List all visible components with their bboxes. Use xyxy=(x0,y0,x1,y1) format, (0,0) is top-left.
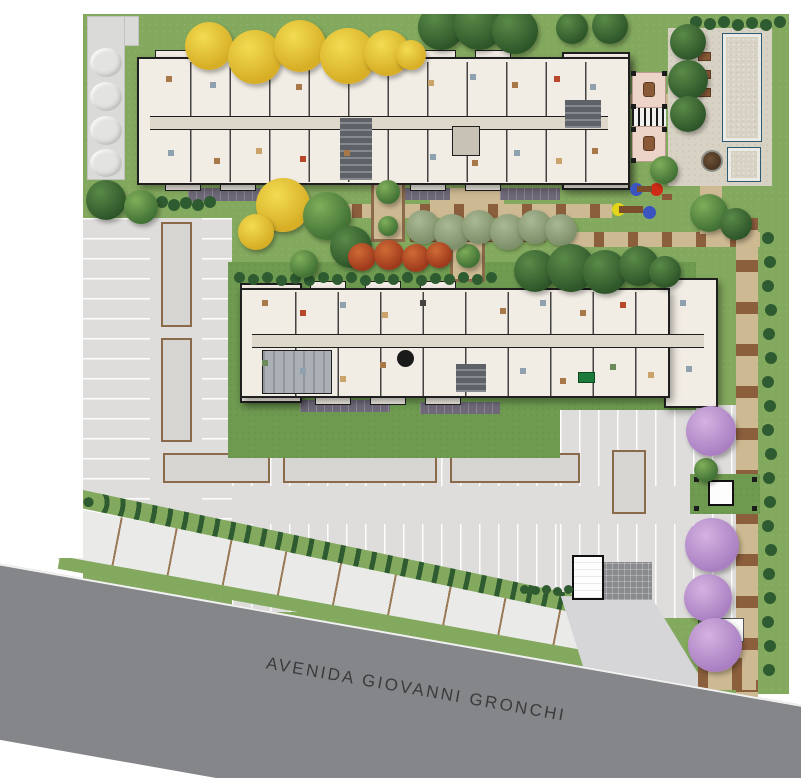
playground-bar xyxy=(637,186,652,192)
gate-post xyxy=(694,506,699,511)
tree-purple xyxy=(684,574,732,622)
hedge-column-right xyxy=(762,232,774,244)
stair-core xyxy=(340,118,372,180)
hedge-guardhouse xyxy=(520,585,529,594)
lap-pool xyxy=(723,34,761,141)
pergola-deck xyxy=(632,108,666,126)
tree-green xyxy=(124,190,158,224)
tree-green xyxy=(556,12,588,44)
parking-island xyxy=(612,450,646,514)
pergola-post xyxy=(662,127,667,132)
wall-scallop xyxy=(90,116,122,145)
tree-green xyxy=(694,458,718,482)
pergola-post xyxy=(631,158,636,163)
palm-tree xyxy=(670,96,706,132)
stair-core xyxy=(456,364,486,392)
round-table xyxy=(397,350,414,367)
pergola-post xyxy=(631,104,636,109)
kids-pool xyxy=(728,148,760,181)
wall-scallop xyxy=(90,149,122,177)
pergola-post xyxy=(631,71,636,76)
tree-green xyxy=(290,250,318,278)
tree-purple xyxy=(688,618,742,672)
tree-purple xyxy=(686,406,736,456)
tree-yellow xyxy=(185,22,233,70)
corridor xyxy=(150,116,608,130)
wall-scallop xyxy=(90,48,122,77)
shrub-red xyxy=(374,240,404,270)
parking-island xyxy=(161,338,192,442)
tree-green xyxy=(720,208,752,240)
tree-yellow xyxy=(274,20,326,72)
tree-yellow xyxy=(238,214,274,250)
margin-right xyxy=(789,0,801,698)
street-name-label: AVENIDA GIOVANNI GRONCHI xyxy=(265,653,568,725)
fire-pit xyxy=(701,150,723,172)
planter-tree xyxy=(378,216,398,236)
unit-partitions xyxy=(152,130,604,182)
driveway-ramp xyxy=(600,562,652,600)
pool-table xyxy=(578,372,595,383)
palm-tree xyxy=(670,24,706,60)
guardhouse xyxy=(572,555,604,600)
pergola-post xyxy=(662,104,667,109)
tree-green xyxy=(86,180,126,220)
bench xyxy=(662,194,672,200)
pergola-post xyxy=(631,127,636,132)
pergola-table xyxy=(643,136,655,151)
parking-island xyxy=(161,222,192,327)
tree-yellow xyxy=(228,30,282,84)
elevator-lobby xyxy=(452,126,480,156)
corridor xyxy=(252,334,704,348)
margin-left xyxy=(0,0,83,558)
unit-partitions xyxy=(254,292,654,334)
site-plan: AVENIDA GIOVANNI GRONCHI xyxy=(0,0,801,778)
tree-green xyxy=(649,256,681,288)
gate-post xyxy=(752,477,757,482)
tree-green xyxy=(650,156,678,184)
playground-toy-blue xyxy=(643,206,656,219)
hedge-row-building2 xyxy=(234,272,245,283)
tree-yellow xyxy=(396,40,426,70)
planter-tree xyxy=(376,180,400,204)
stair-core xyxy=(565,100,601,128)
tree-purple xyxy=(685,518,739,572)
margin-top xyxy=(0,0,801,14)
tree-olive xyxy=(545,214,577,246)
tree-green xyxy=(492,8,538,54)
palm-tree xyxy=(668,60,708,100)
wall-scallop xyxy=(90,82,122,111)
gate-post xyxy=(752,506,757,511)
playground-bar xyxy=(619,206,643,213)
shrub-red xyxy=(348,243,376,271)
pergola-table xyxy=(643,82,655,97)
pergola-post xyxy=(662,71,667,76)
gym-area xyxy=(262,350,332,394)
paver-strip xyxy=(500,188,560,200)
gate-kiosk xyxy=(708,480,734,506)
shrub-red xyxy=(426,242,452,268)
